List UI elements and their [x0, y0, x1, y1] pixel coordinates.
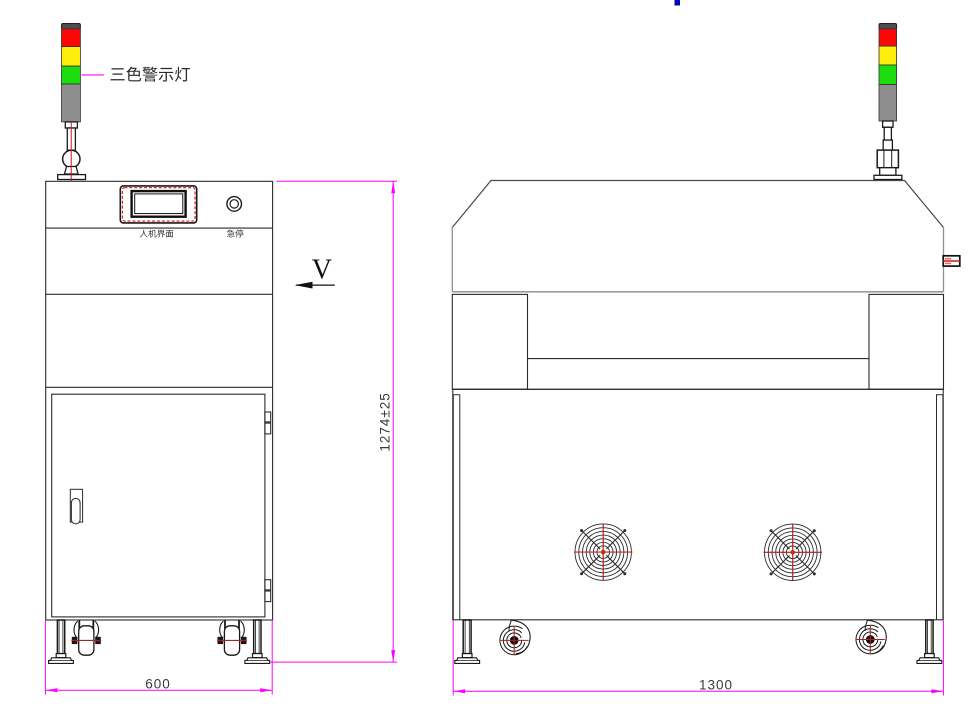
svg-text:1274±25: 1274±25 — [377, 392, 392, 451]
svg-text:1300: 1300 — [699, 678, 733, 693]
svg-text:V: V — [312, 254, 332, 285]
svg-text:600: 600 — [145, 677, 171, 692]
